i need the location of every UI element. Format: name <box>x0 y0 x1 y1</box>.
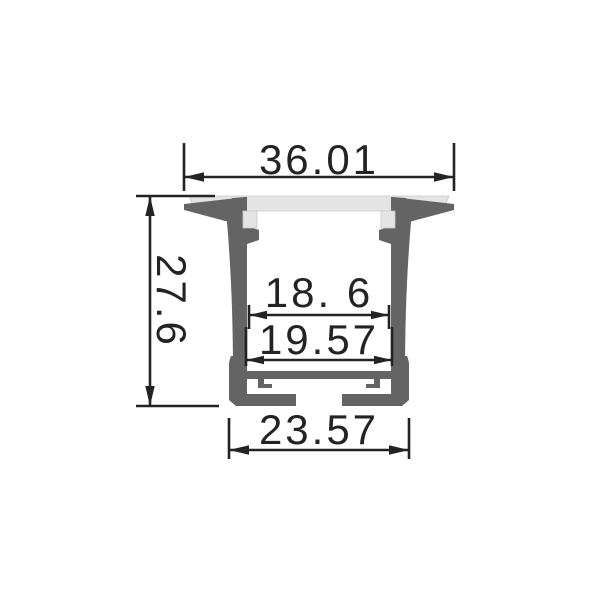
dimension-label-overall-width: 36.01 <box>259 136 379 183</box>
inner-bottom-bar <box>240 371 398 379</box>
drawing-canvas: 36.01 27.6 18. 6 19.57 <box>0 0 600 600</box>
profile-technical-drawing: 36.01 27.6 18. 6 19.57 <box>0 0 600 600</box>
dimension-groove-width: 19.57 <box>246 316 392 366</box>
dimension-label-inner-width: 18. 6 <box>265 269 373 316</box>
dimension-label-groove-width: 19.57 <box>259 316 379 363</box>
dimension-label-base-width: 23.57 <box>259 406 379 453</box>
dimension-label-overall-height: 27.6 <box>148 254 195 348</box>
diffuser-clip-right <box>381 211 395 228</box>
diffuser-clip-left <box>243 211 257 228</box>
